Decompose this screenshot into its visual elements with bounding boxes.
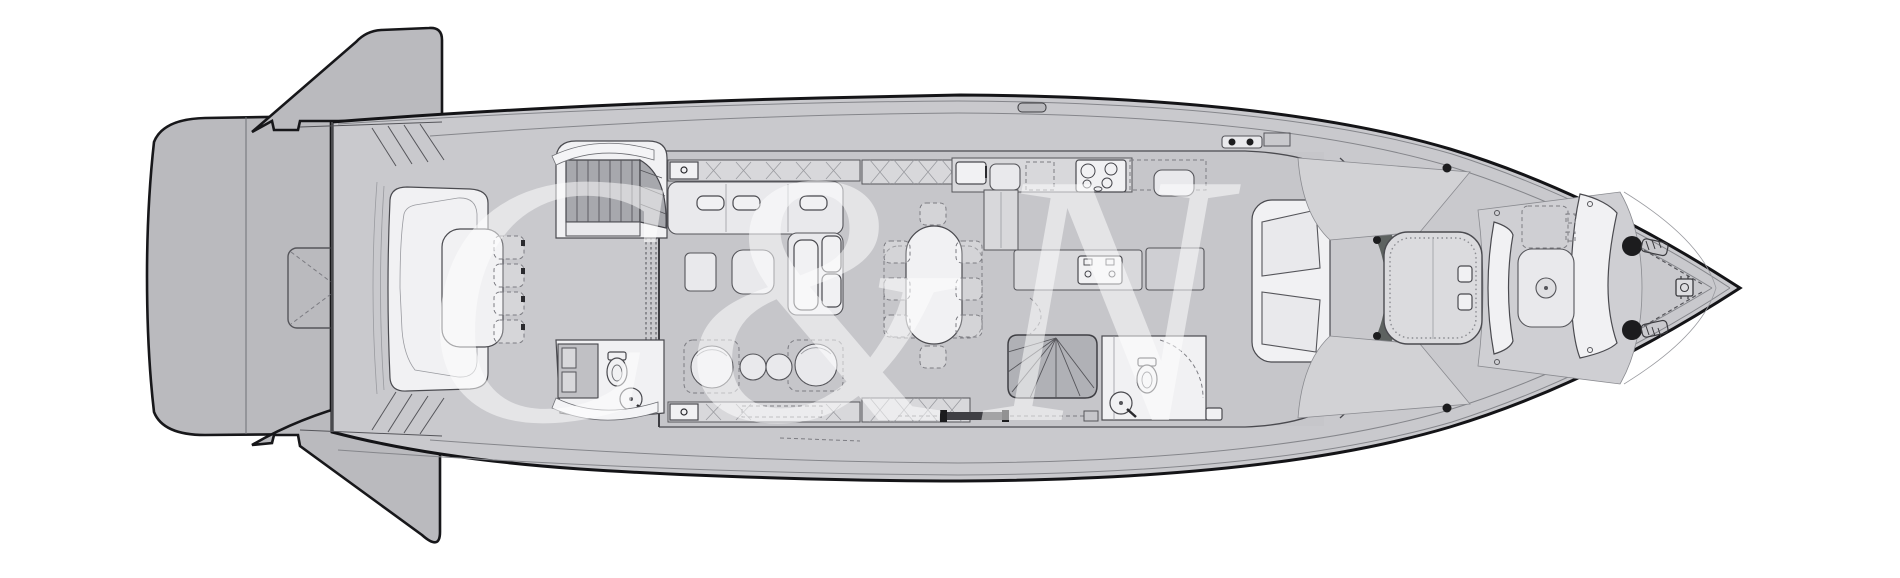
wiper-mount-icon (1373, 332, 1381, 340)
deck-light-icon (1443, 164, 1452, 173)
deck-plan-page: C&N (0, 0, 1900, 578)
watermark: C&N (420, 99, 1246, 498)
foredeck-sunpad (1384, 232, 1482, 344)
deck-plan-svg: C&N (0, 0, 1900, 578)
helm-seat-cushion (1262, 292, 1320, 352)
cup-holder (1458, 266, 1472, 282)
swim-platform (147, 116, 343, 435)
swim-platform-shape (147, 116, 331, 435)
watermark-text: C&N (420, 99, 1246, 498)
cup-holder (1458, 294, 1472, 310)
bow-roller (1676, 276, 1693, 299)
bow-table-center (1544, 286, 1548, 290)
deck-light-icon (1443, 404, 1452, 413)
helm-seat-cushion (1262, 210, 1320, 276)
wiper-mount-icon (1373, 236, 1381, 244)
